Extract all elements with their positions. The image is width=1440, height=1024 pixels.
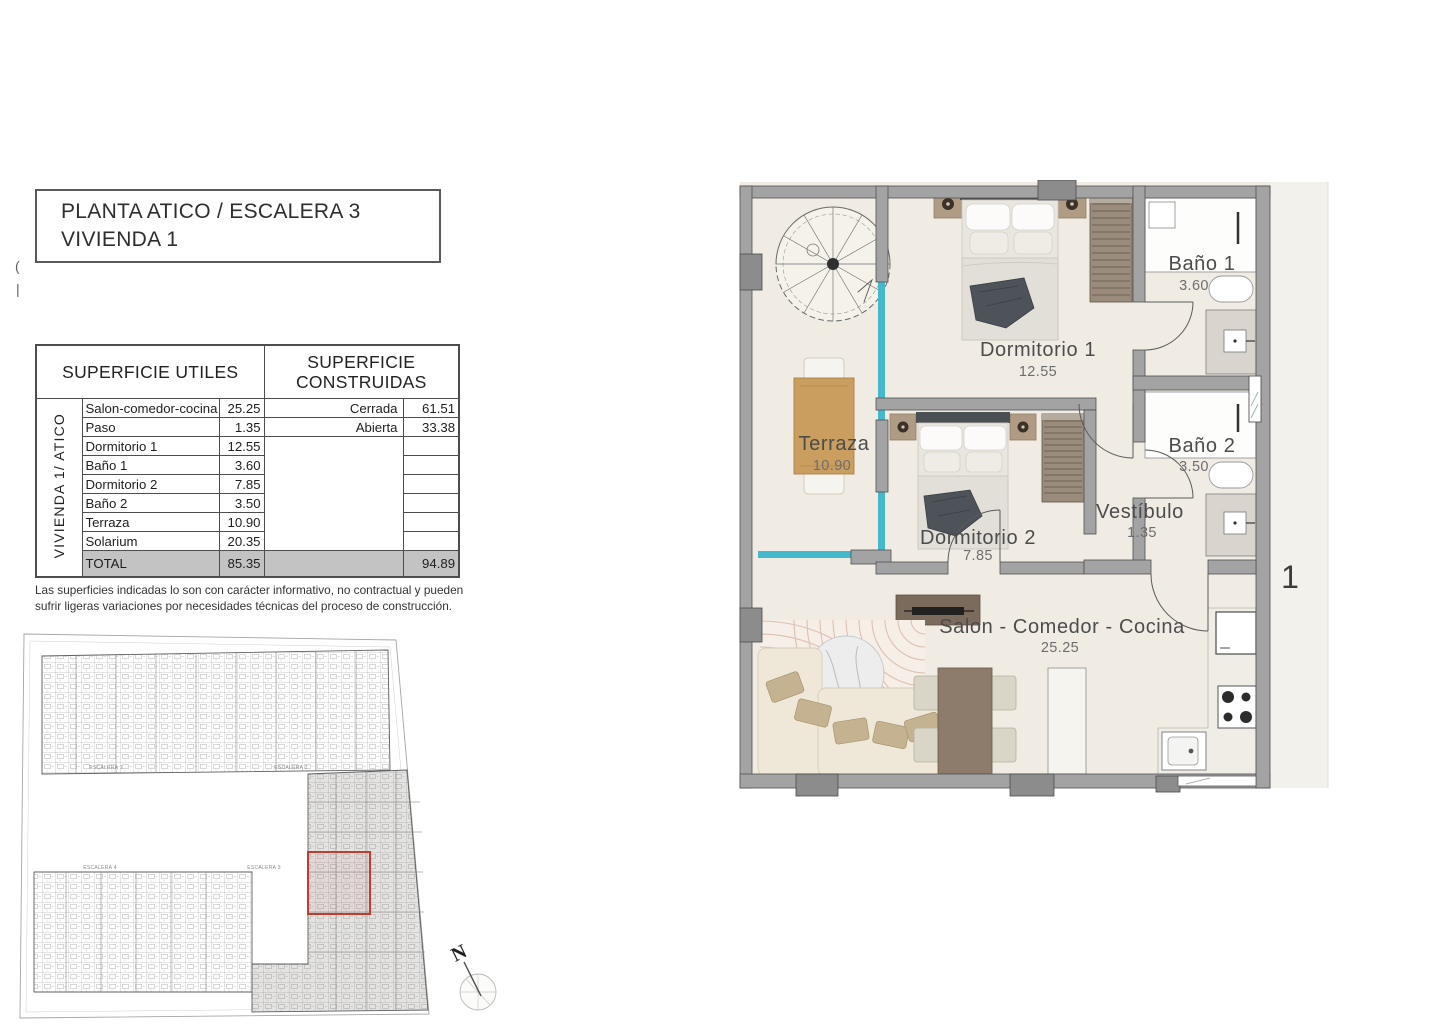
room-name: Solarium <box>82 532 219 551</box>
exterior-strip <box>1270 182 1328 788</box>
dormitorio2-wardrobe <box>1042 414 1084 502</box>
plan-title-line2: VIVIENDA 1 <box>61 226 439 254</box>
room-name: Terraza <box>82 513 219 532</box>
header-superficie-utiles: SUPERFICIE UTILES <box>36 345 264 399</box>
room-label-dormitorio2: Dormitorio 2 <box>920 527 1036 549</box>
room-label-dormitorio1: Dormitorio 1 <box>980 339 1096 361</box>
construida-value: 33.38 <box>403 418 459 437</box>
plan-title-line1: PLANTA ATICO / ESCALERA 3 <box>61 198 439 226</box>
table-row: VIVIENDA 1/ ATICO Salon-comedor-cocina 2… <box>36 399 459 418</box>
title-block: PLANTA ATICO / ESCALERA 3 VIVIENDA 1 <box>35 189 441 263</box>
room-area: 3.60 <box>219 456 264 475</box>
building-bottom-wing <box>34 872 252 992</box>
room-area: 3.50 <box>219 494 264 513</box>
room-area-salon: 25.25 <box>1041 640 1079 656</box>
dormitorio1-wardrobe <box>1090 196 1132 302</box>
key-plan-label-escalera4: ESCALERA 4 <box>83 865 117 871</box>
room-label-bano1: Baño 1 <box>1169 253 1236 275</box>
room-label-terraza: Terraza <box>799 433 870 455</box>
room-area-terraza: 10.90 <box>813 458 851 474</box>
room-label-vestibulo: Vestíbulo <box>1096 501 1184 523</box>
room-area: 10.90 <box>219 513 264 532</box>
room-area-vestibulo: 1.35 <box>1127 525 1157 541</box>
unit-number-label: 1 <box>1281 559 1299 595</box>
unit-highlight-box <box>308 852 370 914</box>
dining-table <box>938 668 992 774</box>
wall-mirror <box>1249 376 1261 422</box>
table-total-row: TOTAL 85.35 94.89 <box>36 551 459 578</box>
room-name: Salon-comedor-cocina <box>82 399 219 418</box>
room-area: 25.25 <box>219 399 264 418</box>
key-plan-label-escalera1: ESCALERA 1 <box>89 765 123 771</box>
table-row: Solarium 20.35 <box>36 532 459 551</box>
construida-label: Abierta <box>264 418 403 437</box>
room-name: Dormitorio 2 <box>82 475 219 494</box>
construida-value: 61.51 <box>403 399 459 418</box>
room-area: 20.35 <box>219 532 264 551</box>
apartment-floor-plan: Dormitorio 1 12.55 Baño 1 3.60 Dormitori… <box>738 180 1370 802</box>
bottom-wall-window <box>1178 776 1256 786</box>
room-area: 1.35 <box>219 418 264 437</box>
room-area: 12.55 <box>219 437 264 456</box>
room-area-dormitorio1: 12.55 <box>1019 364 1057 380</box>
disclaimer-text: Las superficies indicadas lo son con car… <box>35 583 471 614</box>
room-area: 7.85 <box>219 475 264 494</box>
north-arrow: N <box>436 934 520 1022</box>
row-group-label: VIVIENDA 1/ ATICO <box>36 399 82 578</box>
table-header-row: SUPERFICIE UTILES SUPERFICIE CONSTRUIDAS <box>36 345 459 399</box>
cropped-text-fragment: ( <box>15 258 20 274</box>
key-plan-label-escalera3: ESCALERA 3 <box>247 865 281 871</box>
table-row: Baño 2 3.50 <box>36 494 459 513</box>
kitchen-island <box>1048 668 1086 774</box>
floorplan-sheet: { "title_block": { "line1": "PLANTA ATIC… <box>0 0 1440 1024</box>
room-area-dormitorio2: 7.85 <box>963 548 993 564</box>
room-name: Paso <box>82 418 219 437</box>
toilet <box>1209 276 1253 302</box>
toilet <box>1209 462 1253 488</box>
table-row: Paso 1.35 Abierta 33.38 <box>36 418 459 437</box>
areas-table: SUPERFICIE UTILES SUPERFICIE CONSTRUIDAS… <box>35 344 460 578</box>
stove <box>1218 686 1256 728</box>
room-label-bano2: Baño 2 <box>1169 435 1236 457</box>
spiral-staircase <box>776 207 890 321</box>
total-label: TOTAL <box>82 551 219 578</box>
room-name: Baño 1 <box>82 456 219 475</box>
header-superficie-construidas: SUPERFICIE CONSTRUIDAS <box>264 345 459 399</box>
room-name: Dormitorio 1 <box>82 437 219 456</box>
table-row: Terraza 10.90 <box>36 513 459 532</box>
room-area-bano2: 3.50 <box>1179 459 1209 475</box>
table-row: Dormitorio 2 7.85 <box>36 475 459 494</box>
table-row: Baño 1 3.60 <box>36 456 459 475</box>
cropped-text-fragment: | <box>16 281 20 297</box>
north-label: N <box>448 940 471 966</box>
construida-label: Cerrada <box>264 399 403 418</box>
total-utiles-value: 85.35 <box>219 551 264 578</box>
building-top-wing <box>42 650 390 774</box>
table-row: Dormitorio 1 12.55 <box>36 437 459 456</box>
room-name: Baño 2 <box>82 494 219 513</box>
total-construida-value: 94.89 <box>403 551 459 578</box>
key-plan: ESCALERA 1 ESCALERA 2 ESCALERA 4 ESCALER… <box>16 622 474 1022</box>
room-area-bano1: 3.60 <box>1179 278 1209 294</box>
room-label-salon: Salon - Comedor - Cocina <box>939 616 1185 638</box>
key-plan-label-escalera2: ESCALERA 2 <box>274 765 308 771</box>
